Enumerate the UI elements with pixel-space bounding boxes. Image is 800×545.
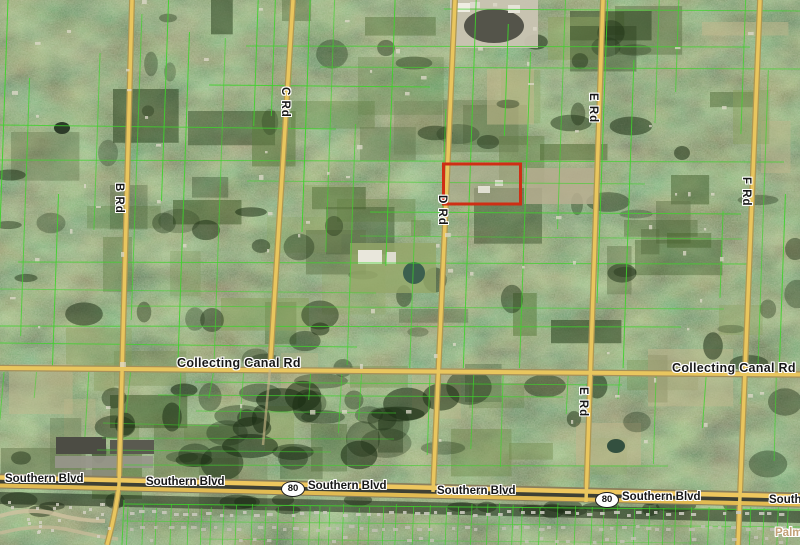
- pond: [54, 122, 70, 134]
- road-label-southern-blvd-3: Southern Blvd: [308, 480, 387, 492]
- road-label-southern-blvd-4: Southern Blvd: [437, 485, 516, 497]
- road-label-southern-blvd-2: Southern Blvd: [146, 476, 225, 488]
- map-viewport[interactable]: B Rd C Rd D Rd E Rd E Rd F Rd Collecting…: [0, 0, 800, 545]
- commercial-building: [110, 440, 154, 454]
- route-shield-80-west: 80: [281, 481, 305, 497]
- road-label-southern-blvd-partial: South: [769, 494, 800, 506]
- pond: [403, 262, 425, 284]
- road-label-southern-blvd-1: Southern Blvd: [5, 473, 84, 485]
- pond: [607, 439, 625, 453]
- road-label-d-rd: D Rd: [436, 195, 448, 226]
- road-label-southern-blvd-5: Southern Blvd: [622, 491, 701, 503]
- road-label-b-rd: B Rd: [113, 183, 125, 214]
- road-label-c-rd: C Rd: [279, 87, 291, 118]
- road-label-e-rd-north: E Rd: [587, 93, 599, 123]
- road-label-e-rd-south: E Rd: [577, 387, 589, 417]
- road-label-collecting-canal-rd-east: Collecting Canal Rd: [672, 361, 796, 375]
- parking-lot: [55, 456, 153, 468]
- facility-pond: [464, 9, 524, 43]
- road-label-collecting-canal-rd-west: Collecting Canal Rd: [177, 356, 301, 370]
- place-label-palm-partial: Palm: [775, 527, 800, 539]
- road-label-f-rd: F Rd: [740, 177, 752, 207]
- commercial-building: [56, 437, 106, 454]
- route-shield-80-east: 80: [595, 492, 619, 508]
- aerial-basemap: [0, 0, 800, 545]
